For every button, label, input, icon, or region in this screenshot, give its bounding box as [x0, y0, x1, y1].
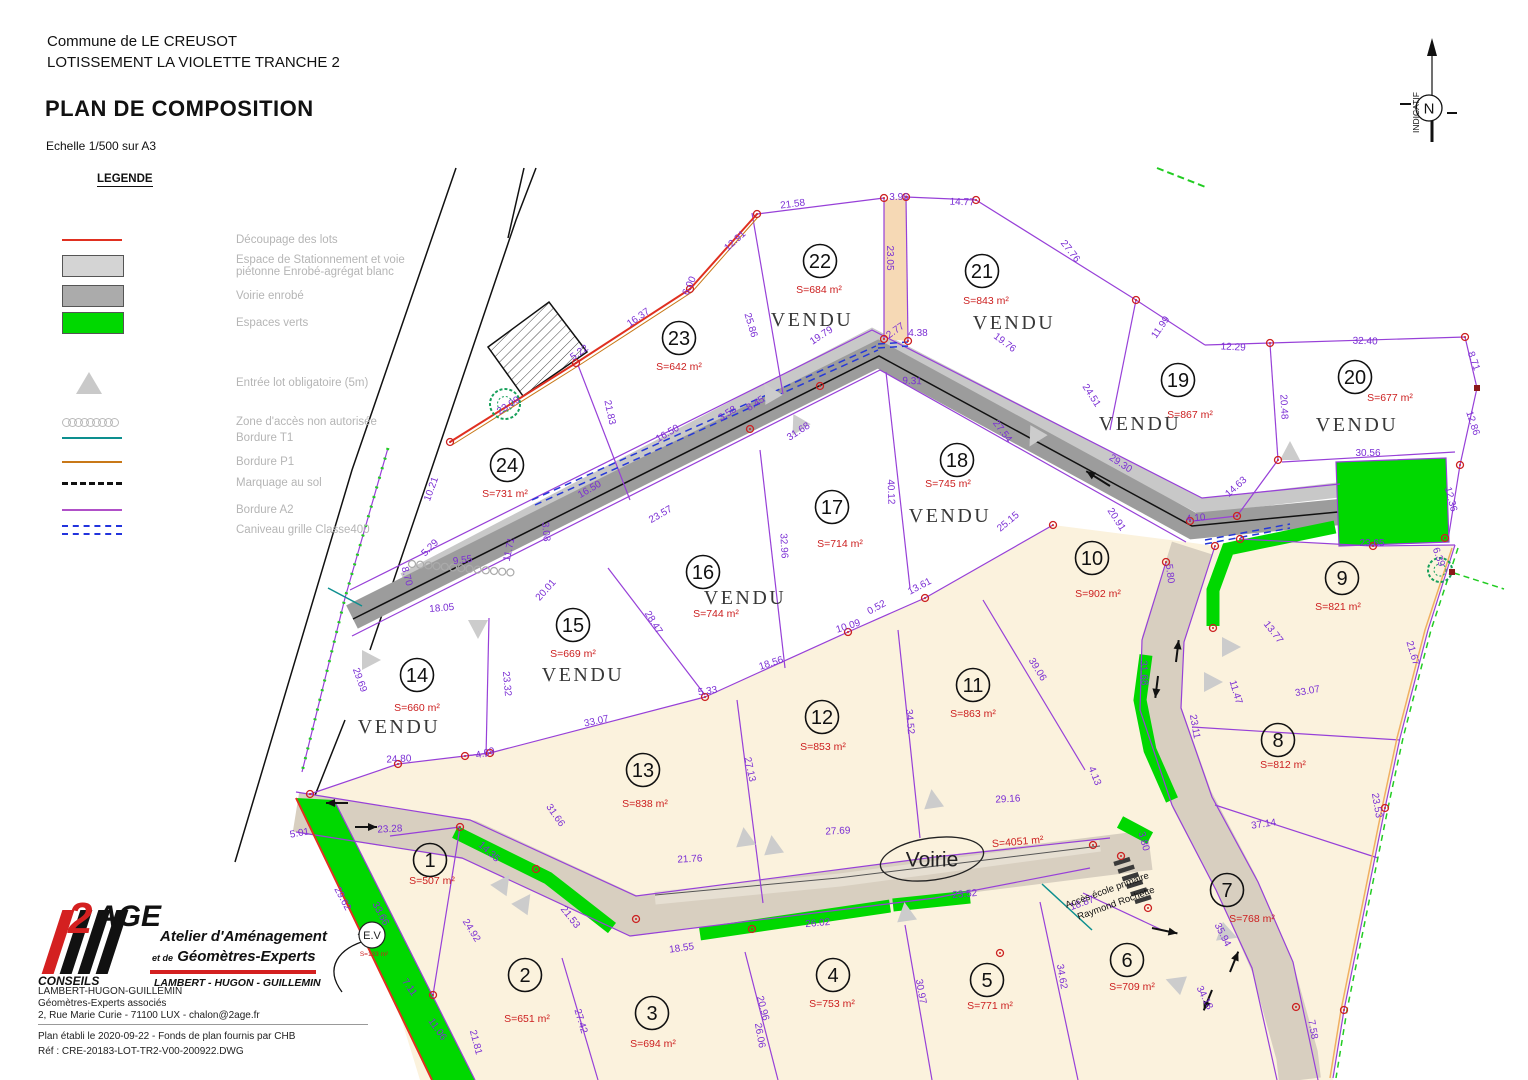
dimension-label: 4.10: [1186, 512, 1207, 525]
line-teal-swatch: [62, 437, 124, 439]
legend-item-dash-black: Marquage au sol: [62, 477, 322, 489]
lot-boundary: [760, 450, 785, 668]
lot-16-area: S=744 m²: [693, 608, 739, 620]
boundary-marker: [1474, 385, 1480, 391]
lot-11-number: 11: [963, 675, 984, 697]
page-title: PLAN DE COMPOSITION: [45, 96, 314, 122]
lot-21-area: S=843 m²: [963, 295, 1009, 307]
lot-14-area: S=660 m²: [394, 702, 440, 714]
line-purple-swatch: [62, 509, 124, 511]
lot-1-area: S=507 m²: [409, 875, 455, 887]
dimension-label: 27.69: [825, 825, 851, 837]
boundary-marker: [1449, 569, 1455, 575]
legend-item-label: Bordure A2: [236, 504, 294, 516]
legend-item-line-purple: Bordure A2: [62, 504, 294, 516]
dash-black-swatch: [62, 482, 124, 485]
dimension-label: 27.76: [1058, 238, 1082, 265]
dimension-label: 31.68: [1137, 660, 1149, 686]
box-light-swatch: [62, 255, 124, 277]
survey-point: [756, 213, 758, 215]
logo-line2-main: Géomètres-Experts: [177, 948, 315, 965]
dimension-label: 23.57: [647, 504, 675, 526]
legend-item-line-teal: Bordure T1: [62, 432, 293, 444]
survey-point: [751, 928, 753, 930]
lot-21-vendu-label: VENDU: [973, 312, 1056, 334]
north-indicatif-label: INDICATIF: [1411, 92, 1421, 133]
survey-point: [999, 952, 1001, 954]
survey-point: [459, 826, 461, 828]
legend-item-label: Découpage des lots: [236, 234, 338, 246]
dimension-label: 23.28: [377, 823, 403, 835]
legend-item-triangle: Entrée lot obligatoire (5m): [62, 372, 368, 394]
survey-point: [1277, 459, 1279, 461]
dimension-label: 29.69: [350, 667, 369, 695]
lot-19-vendu-label: VENDU: [1099, 413, 1182, 435]
lot-5-number: 5: [981, 970, 992, 992]
survey-point: [464, 755, 466, 757]
dimension-label: 25.86: [741, 312, 759, 340]
address-line: Géomètres-Experts associés: [38, 998, 166, 1009]
logo-2: 2: [68, 894, 92, 944]
dimension-label: 12.86: [1463, 410, 1481, 438]
dimension-label: 40.12: [885, 479, 897, 505]
lot-10-number: 10: [1081, 548, 1103, 570]
survey-point: [1269, 342, 1271, 344]
legend-item-label: Espaces verts: [236, 317, 308, 329]
lot-17-area: S=714 m²: [817, 538, 863, 550]
legend-item-dash-blue: Caniveau grille Classe400: [62, 524, 370, 536]
scale-label: Echelle 1/500 sur A3: [46, 139, 156, 153]
triangle-swatch: [62, 372, 124, 394]
survey-point: [1165, 561, 1167, 563]
lot-21-number: 21: [971, 261, 993, 283]
lot-6-area: S=709 m²: [1109, 981, 1155, 993]
dimension-label: 34.52: [903, 709, 916, 735]
legend-item-line-orange: Bordure P1: [62, 456, 294, 468]
dimension-label: 20.91: [1105, 506, 1128, 533]
legend-item-label: Bordure T1: [236, 432, 293, 444]
lot-7-number: 7: [1221, 880, 1232, 902]
voirie-label: Voirie: [906, 848, 959, 871]
lot-3-number: 3: [646, 1003, 657, 1025]
dimension-label: 14.77: [949, 197, 975, 209]
dimension-label: 24.51: [1080, 382, 1103, 409]
survey-point: [1239, 538, 1241, 540]
dimension-label: 23.05: [884, 245, 895, 270]
survey-point: [819, 385, 821, 387]
dimension-label: 32.96: [777, 533, 789, 559]
lot-boundary: [1110, 300, 1136, 430]
lot-boundary: [1270, 344, 1278, 460]
plan-date-note: Plan établi le 2020-09-22 - Fonds de pla…: [38, 1031, 295, 1042]
dimension-label: 28.47: [642, 609, 665, 636]
survey-point: [1464, 336, 1466, 338]
dimension-label: 32.40: [1352, 336, 1378, 348]
lot-8-area: S=812 m²: [1260, 759, 1306, 771]
dimension-label: 20.48: [1277, 394, 1289, 420]
address-line: 2, Rue Marie Curie - 71100 LUX - chalon@…: [38, 1010, 260, 1021]
chain-swatch: [62, 418, 124, 427]
lot-boundary: [976, 200, 1136, 300]
dimension-label: 12.29: [1220, 341, 1246, 353]
lot-boundary: [757, 198, 884, 214]
lotissement-title: LOTISSEMENT LA VIOLETTE TRANCHE 2: [47, 54, 340, 71]
survey-point: [1459, 464, 1461, 466]
lot-6-number: 6: [1121, 950, 1132, 972]
ev-label: E.V: [363, 930, 381, 942]
dimension-label: 26.02: [805, 917, 831, 930]
survey-point: [449, 441, 451, 443]
survey-point: [1052, 524, 1054, 526]
lot-4-number: 4: [827, 965, 838, 987]
logo-line2-small: et de: [152, 953, 173, 963]
lot-22-area: S=684 m²: [796, 284, 842, 296]
lot-9-area: S=821 m²: [1315, 601, 1361, 613]
legend-item-line-red: Découpage des lots: [62, 234, 338, 246]
hook-curve: [334, 940, 368, 992]
lot-19-number: 19: [1167, 370, 1189, 392]
dimension-label: 3.96: [889, 192, 909, 203]
lot-boundary: [486, 618, 489, 757]
legend-item-chain: Zone d'accès non autorisée: [62, 416, 377, 428]
logo-line2: et de Géomètres-Experts: [152, 948, 316, 965]
lot-12-area: S=853 m²: [800, 741, 846, 753]
survey-point: [1444, 537, 1446, 539]
dimension-label: 20.01: [534, 577, 559, 603]
dimension-label: 4.38: [908, 328, 928, 339]
lot-20-number: 20: [1344, 367, 1366, 389]
north-n-label: N: [1424, 100, 1435, 117]
survey-point: [635, 918, 637, 920]
lot-2-area: S=651 m²: [504, 1013, 550, 1025]
lot-entry-triangle: [468, 620, 488, 639]
existing-road-edge: [508, 168, 524, 238]
lot-14-vendu-label: VENDU: [358, 716, 441, 738]
legend-item-box-green: Espaces verts: [62, 312, 308, 334]
lot-24-number: 24: [496, 455, 518, 477]
survey-point: [1092, 844, 1094, 846]
line-orange-swatch: [62, 461, 124, 463]
survey-point: [432, 994, 434, 996]
survey-point: [1384, 807, 1386, 809]
legend-item-box-light: Espace de Stationnement et voiepiétonne …: [62, 254, 405, 278]
lot-15-number: 15: [562, 615, 584, 637]
dimension-label: 23.52: [952, 888, 978, 901]
survey-point: [907, 340, 909, 342]
dimension-label: 19.76: [991, 331, 1018, 355]
ev-area-label: S=133 m²: [360, 951, 389, 958]
lot-boundary: [752, 213, 783, 394]
box-gray-swatch: [62, 285, 124, 307]
survey-point: [1147, 907, 1149, 909]
legend-item-box-gray: Voirie enrobé: [62, 285, 304, 307]
lot-13-number: 13: [632, 760, 654, 782]
dimension-label: 13.61: [906, 576, 934, 598]
dimension-label: 23.65: [1359, 538, 1384, 549]
legend-item-label: Marquage au sol: [236, 477, 322, 489]
lot-13-area: S=838 m²: [622, 798, 668, 810]
lot-24-area: S=731 m²: [482, 488, 528, 500]
lot-9-number: 9: [1336, 568, 1347, 590]
no-access-chain: [499, 568, 506, 575]
survey-point: [1343, 1009, 1345, 1011]
survey-point: [924, 597, 926, 599]
dash-blue-swatch: [62, 525, 124, 535]
green-deadend: [1336, 458, 1449, 546]
company-logo: 2 AGE Atelier d'Aménagement et de Géomèt…: [38, 898, 318, 986]
dimension-label: 11.99: [1149, 314, 1172, 341]
dimension-label: 30.56: [1355, 448, 1380, 459]
lot-entry-triangle: [1280, 441, 1300, 460]
lot-5-area: S=771 m²: [967, 1000, 1013, 1012]
plan-sheet: 21.583.9614.7723.0527.7612.916.0016.3725…: [0, 0, 1528, 1080]
survey-point: [1214, 545, 1216, 547]
dimension-label: 24.80: [386, 753, 412, 765]
plan-ref-note: Réf : CRE-20183-LOT-TR2-V00-200922.DWG: [38, 1046, 244, 1057]
dimension-label: 8.71: [1465, 350, 1482, 372]
lot-4-area: S=753 m²: [809, 998, 855, 1010]
lot-17-number: 17: [821, 497, 843, 519]
dimension-label: 21.76: [677, 853, 703, 865]
dimension-label: 23.32: [500, 671, 513, 697]
lot-10-area: S=902 m²: [1075, 588, 1121, 600]
lot-7-area: S=768 m²: [1229, 913, 1275, 925]
dimension-label: 9.31: [902, 376, 922, 388]
lot-16-vendu-label: VENDU: [704, 587, 787, 609]
dimension-label: 5.01: [289, 826, 311, 840]
lot-23-area: S=642 m²: [656, 361, 702, 373]
commune-title: Commune de LE CREUSOT: [47, 33, 237, 50]
lot-3-area: S=694 m²: [630, 1038, 676, 1050]
logo-line1: Atelier d'Aménagement: [160, 928, 327, 945]
survey-point: [1120, 855, 1122, 857]
lot-1-number: 1: [424, 850, 435, 872]
lot-22-vendu-label: VENDU: [771, 309, 854, 331]
legend-item-label: Entrée lot obligatoire (5m): [236, 377, 368, 389]
lot-15-area: S=669 m²: [550, 648, 596, 660]
survey-point: [883, 338, 885, 340]
dimension-label: 25.15: [995, 510, 1022, 535]
legend-item-label: Espace de Stationnement et voiepiétonne …: [236, 254, 405, 278]
survey-point: [1212, 627, 1214, 629]
lot-14-number: 14: [406, 665, 428, 687]
survey-point: [1236, 515, 1238, 517]
logo-red-rule: [150, 970, 316, 974]
lot-23-number: 23: [668, 328, 690, 350]
dimension-label: 3.08: [539, 522, 552, 543]
lot-16-number: 16: [692, 562, 714, 584]
lot-8-number: 8: [1272, 730, 1283, 752]
dimension-label: 29.16: [995, 793, 1021, 805]
address-line: LAMBERT-HUGON-GUILLEMIN: [38, 986, 182, 997]
box-green-swatch: [62, 312, 124, 334]
survey-point: [535, 868, 537, 870]
lot-20-area: S=677 m²: [1367, 392, 1413, 404]
dimension-label: 6.00: [681, 274, 699, 297]
lot-12-number: 12: [811, 707, 833, 729]
green-boundary-tie: [1454, 573, 1504, 589]
lot-15-vendu-label: VENDU: [542, 664, 625, 686]
dimension-label: 10.21: [422, 475, 441, 503]
lot-22-number: 22: [809, 251, 831, 273]
lot-18-number: 18: [946, 450, 968, 472]
legend-item-label: Bordure P1: [236, 456, 294, 468]
dimension-label: 0.52: [866, 598, 889, 617]
survey-point: [1135, 299, 1137, 301]
lot-18-area: S=745 m²: [925, 478, 971, 490]
dimension-label: 18.05: [429, 602, 455, 615]
green-dash: [1157, 168, 1208, 188]
lot-2-number: 2: [519, 965, 530, 987]
lot-18-vendu-label: VENDU: [909, 505, 992, 527]
lot-11-area: S=863 m²: [950, 708, 996, 720]
legend-title: LEGENDE: [97, 173, 153, 187]
footer-divider: [38, 1024, 368, 1025]
line-red-swatch: [62, 239, 124, 241]
legend-item-label: Voirie enrobé: [236, 290, 304, 302]
no-access-chain: [507, 569, 514, 576]
lot-20-vendu-label: VENDU: [1316, 414, 1399, 436]
existing-building: [488, 302, 587, 396]
north-arrow: N INDICATIF: [1400, 38, 1457, 142]
survey-point: [309, 793, 311, 795]
lot-entry-triangle: [362, 650, 381, 670]
logo-age: AGE: [96, 900, 161, 934]
legend-item-label: Caniveau grille Classe400: [236, 524, 370, 536]
legend-item-label: Zone d'accès non autorisée: [236, 416, 377, 428]
survey-point: [975, 199, 977, 201]
dimension-label: 21.83: [601, 399, 617, 426]
survey-point: [883, 197, 885, 199]
survey-point: [749, 428, 751, 430]
dimension-label: 21.58: [780, 197, 807, 211]
survey-point: [1295, 1006, 1297, 1008]
no-access-chain: [491, 568, 498, 575]
